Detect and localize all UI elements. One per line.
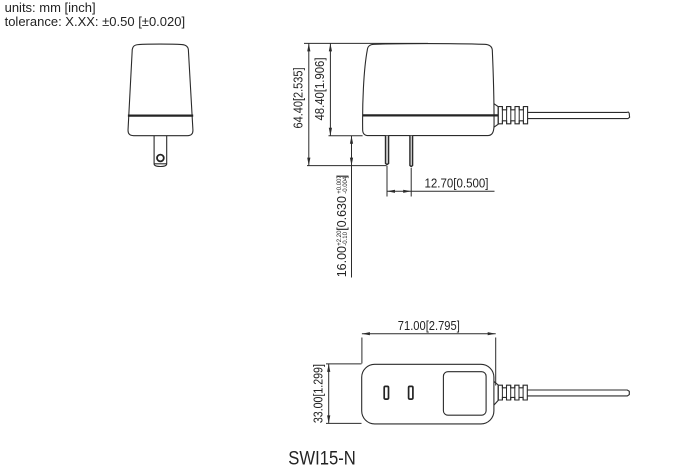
svg-text:48.40[1.906]: 48.40[1.906] [313,58,327,121]
svg-text:12.70[0.500]: 12.70[0.500] [425,177,489,191]
svg-text:units: mm [inch]: units: mm [inch] [5,0,96,15]
svg-text:-0.10: -0.10 [343,231,349,245]
svg-text:[0.630: [0.630 [335,196,349,231]
svg-text:64.40[2.535]: 64.40[2.535] [292,68,306,129]
svg-text:16.00: 16.00 [335,246,349,277]
svg-text:71.00[2.795]: 71.00[2.795] [398,319,460,333]
svg-text:33.00[1.299]: 33.00[1.299] [311,364,325,423]
svg-text:]: ] [335,175,349,178]
svg-text:tolerance: X.XX: ±0.50 [±0.020: tolerance: X.XX: ±0.50 [±0.020] [5,14,186,29]
svg-text:SWI15-N: SWI15-N [288,447,356,469]
